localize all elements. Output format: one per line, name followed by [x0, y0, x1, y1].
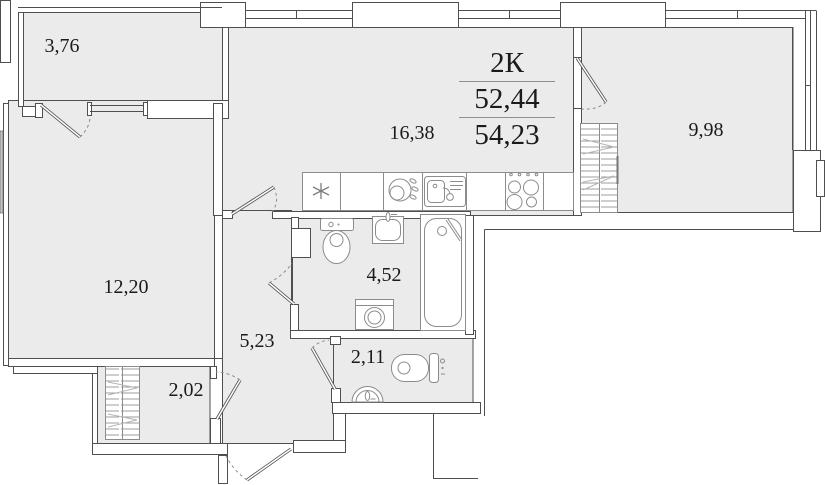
room-label-wc: 2,11 [351, 347, 385, 367]
window-icon [805, 11, 817, 151]
kitchen-counter [303, 173, 574, 211]
title-divider [459, 81, 555, 82]
apartment-type-label: 2К [449, 47, 565, 80]
floor-plan-drawing [0, 0, 825, 485]
wardrobe-icon [106, 367, 140, 440]
floor-plan: 3,76 12,20 16,38 9,98 4,52 5,23 2,02 2,1… [0, 0, 825, 485]
washbasin-icon [373, 213, 404, 244]
window-icon [245, 11, 352, 19]
washing-machine-icon [356, 300, 394, 330]
entrance-door-icon [226, 449, 291, 480]
room-label-living: 12,20 [104, 277, 149, 297]
room-label-hallway: 5,23 [240, 331, 275, 351]
wc-toilet-icon [392, 354, 446, 383]
room-label-bathroom: 4,52 [367, 265, 402, 285]
room-label-kitchen: 16,38 [390, 123, 435, 143]
room-label-closet: 2,02 [169, 380, 204, 400]
room-living [9, 101, 215, 359]
wardrobe-icon [581, 124, 618, 213]
bathtub-icon [421, 215, 466, 331]
room-label-balcony: 3,76 [45, 36, 80, 56]
title-block: 2К 52,44 54,23 [449, 47, 565, 152]
title-divider [459, 117, 555, 118]
living-area-value: 52,44 [449, 83, 565, 116]
total-area-value: 54,23 [449, 119, 565, 152]
window-icon [665, 11, 816, 19]
neighbor-wall-strip [0, 131, 3, 213]
room-label-bedroom: 9,98 [689, 120, 724, 140]
window-icon [458, 11, 560, 19]
